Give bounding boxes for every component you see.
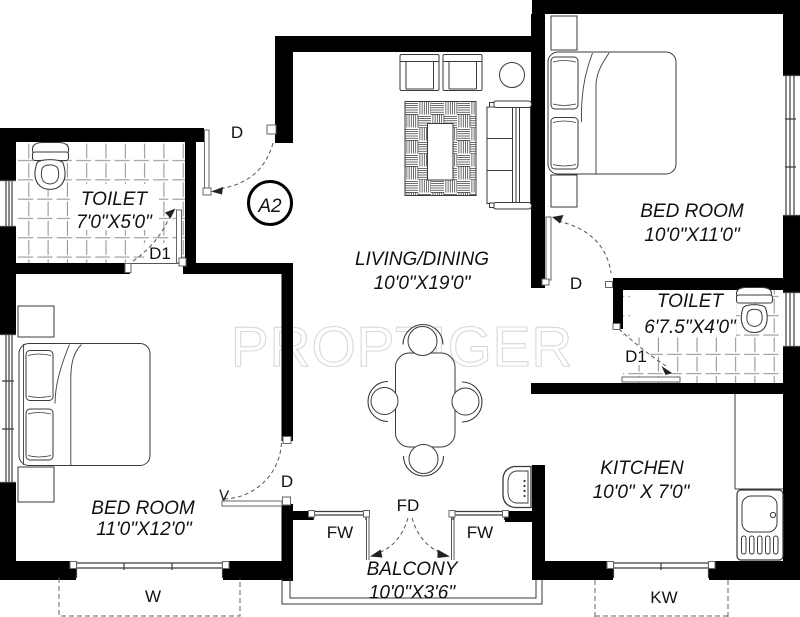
svg-text:W: W — [145, 587, 161, 606]
svg-text:10'0" X 7'0": 10'0" X 7'0" — [593, 482, 691, 503]
svg-text:BALCONY: BALCONY — [367, 559, 459, 580]
svg-text:D: D — [570, 274, 582, 293]
svg-text:FD: FD — [397, 496, 420, 515]
svg-text:D: D — [231, 123, 243, 142]
svg-text:BED ROOM: BED ROOM — [91, 498, 195, 519]
svg-text:FW: FW — [327, 523, 353, 542]
svg-text:D: D — [281, 472, 293, 491]
svg-text:BED ROOM: BED ROOM — [640, 201, 744, 222]
svg-text:10'0"X11'0": 10'0"X11'0" — [644, 225, 741, 246]
svg-text:10'0"X19'0": 10'0"X19'0" — [374, 273, 472, 294]
svg-text:KW: KW — [650, 588, 677, 607]
svg-text:LIVING/DINING: LIVING/DINING — [355, 249, 489, 270]
svg-text:TOILET: TOILET — [81, 189, 149, 210]
svg-text:TOILET: TOILET — [657, 291, 725, 312]
svg-text:7'0"X5'0": 7'0"X5'0" — [76, 212, 153, 233]
svg-text:11'0"X12'0": 11'0"X12'0" — [96, 519, 193, 540]
svg-text:6'7.5"X4'0": 6'7.5"X4'0" — [644, 317, 737, 338]
svg-text:10'0"X3'6": 10'0"X3'6" — [369, 583, 457, 604]
svg-text:D1: D1 — [149, 244, 171, 263]
svg-text:FW: FW — [467, 523, 493, 542]
svg-text:KITCHEN: KITCHEN — [600, 458, 684, 479]
svg-text:A2: A2 — [257, 196, 282, 217]
svg-text:D1: D1 — [625, 347, 647, 366]
